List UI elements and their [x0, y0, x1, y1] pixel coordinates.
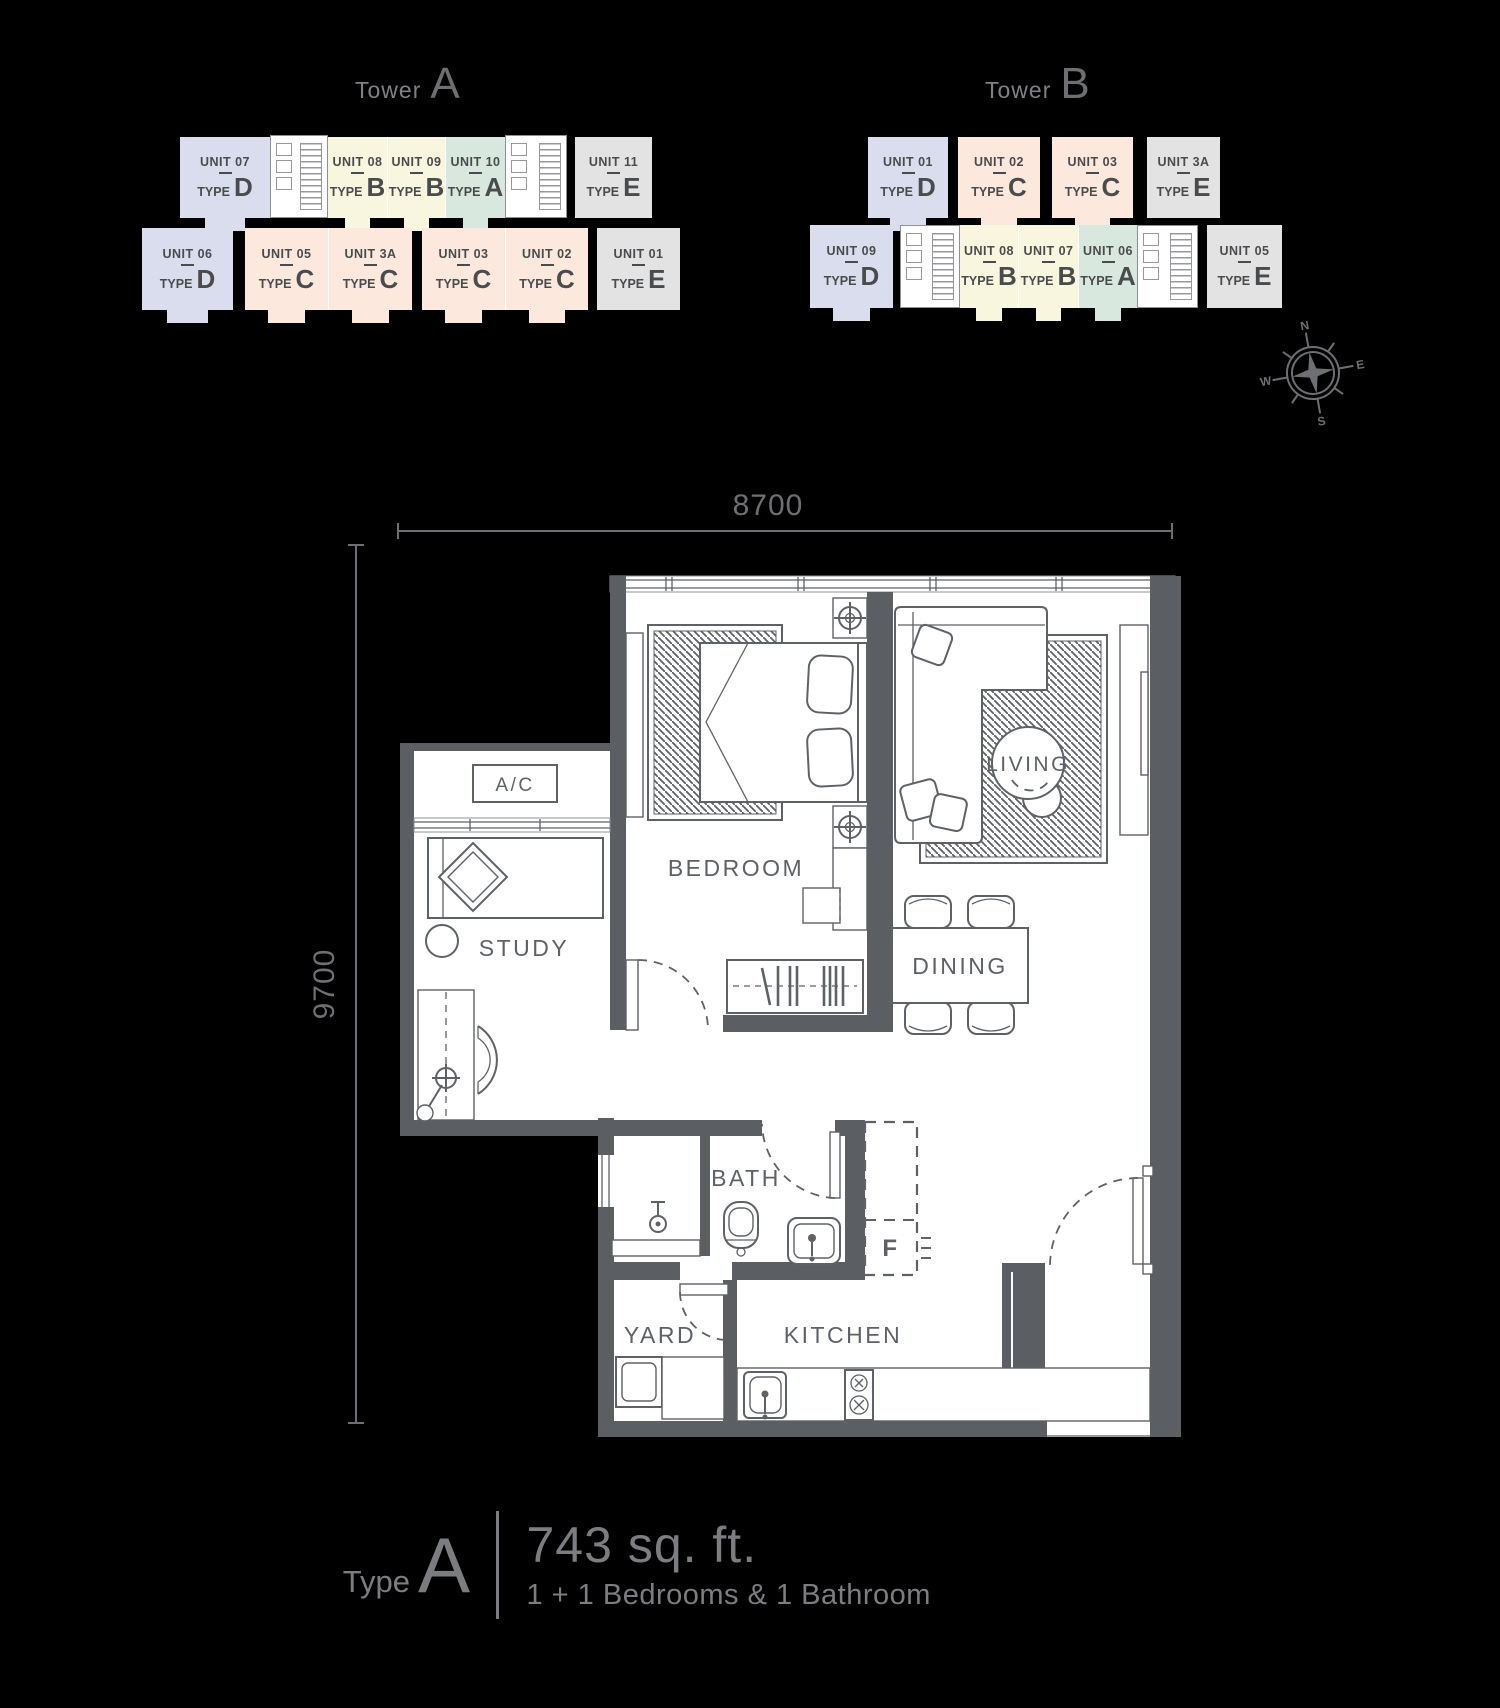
type-word: TYPE [1021, 274, 1054, 288]
tower-a-core-1 [270, 135, 328, 218]
type-letter: C [379, 268, 398, 291]
tv-console [1120, 625, 1148, 835]
type-letter: A [1117, 265, 1136, 288]
unit-block-a11: UNIT 11 TYPEE [575, 137, 652, 218]
type-word: TYPE [160, 277, 193, 291]
unit-number: UNIT 03 [1067, 155, 1117, 169]
type-letter: E [623, 176, 640, 199]
unit-block-a09: UNIT 09 TYPEB [387, 137, 445, 218]
bed [700, 643, 867, 802]
unit-number: UNIT 11 [589, 155, 638, 169]
window-shower [598, 1155, 614, 1207]
caption-area: 743 sq. ft. [527, 1518, 931, 1573]
window-sill-study [414, 818, 610, 832]
kitchen-counter [737, 1368, 1150, 1421]
unit-number: UNIT 06 [162, 247, 212, 261]
unit-block-a02: UNIT 02 TYPEC [505, 228, 588, 310]
type-letter: D [196, 268, 215, 291]
unit-number: UNIT 07 [200, 155, 250, 169]
type-word: TYPE [587, 185, 620, 199]
type-word: TYPE [448, 185, 481, 199]
type-word: TYPE [519, 277, 552, 291]
type-word: TYPE [197, 185, 230, 199]
type-letter: C [1101, 176, 1120, 199]
unit-block-a03: UNIT 03 TYPEC [422, 228, 505, 310]
unit-block-a3a: UNIT 3A TYPEC [328, 228, 412, 310]
unit-block-a10-highlight: UNIT 10 TYPEA [445, 137, 505, 218]
compass-e: E [1355, 357, 1365, 372]
caption-type-letter: A [418, 1526, 470, 1604]
unit-number: UNIT 01 [883, 155, 933, 169]
type-letter: B [998, 265, 1017, 288]
type-letter: B [1057, 265, 1076, 288]
dim-height-label: 9700 [308, 949, 341, 1020]
type-word: TYPE [971, 185, 1004, 199]
unit-block-a06: UNIT 06 TYPED [142, 228, 233, 310]
unit-number: UNIT 02 [974, 155, 1024, 169]
type-letter: C [1008, 176, 1027, 199]
bookshelf [727, 960, 863, 1013]
compass-w: W [1259, 373, 1273, 389]
type-letter: E [1193, 176, 1210, 199]
type-letter: C [472, 268, 491, 291]
unit-number: UNIT 09 [826, 244, 876, 258]
type-letter: D [234, 176, 253, 199]
unit-block-b09: UNIT 09 TYPED [810, 225, 893, 308]
unit-block-a05: UNIT 05 TYPEC [245, 228, 328, 310]
unit-block-b01: UNIT 01 TYPED [868, 137, 948, 218]
type-word: TYPE [330, 185, 363, 199]
unit-number: UNIT 05 [261, 247, 311, 261]
floorplan-sheet: Tower A Tower B UNIT 07 TYPED UNIT 08 TY… [0, 0, 1500, 1708]
type-word: TYPE [824, 274, 857, 288]
type-word: TYPE [1218, 274, 1251, 288]
unit-block-a08: UNIT 08 TYPEB [328, 137, 387, 218]
tower-a-word: Tower [355, 77, 421, 104]
type-word: TYPE [961, 274, 994, 288]
unit-block-b07: UNIT 07 TYPEB [1018, 225, 1078, 308]
ac-label: A/C [495, 775, 534, 796]
unit-number: UNIT 3A [1157, 155, 1209, 169]
bath-label: BATH [711, 1165, 781, 1191]
type-word: TYPE [612, 277, 645, 291]
unit-number: UNIT 10 [450, 155, 500, 169]
type-letter: C [295, 268, 314, 291]
unit-block-b06-highlight: UNIT 06 TYPEA [1078, 225, 1137, 308]
type-letter: B [366, 176, 385, 199]
unit-block-b03: UNIT 03 TYPEC [1052, 137, 1133, 218]
type-letter: D [860, 265, 879, 288]
window-band-top [610, 576, 1175, 592]
unit-number: UNIT 08 [332, 155, 382, 169]
ac-ledge: A/C [473, 765, 557, 802]
stove [845, 1370, 873, 1420]
unit-number: UNIT 01 [613, 247, 663, 261]
type-letter: E [1254, 265, 1271, 288]
living-label: LIVING [986, 753, 1070, 776]
tower-b-core-1 [900, 225, 960, 308]
unit-number: UNIT 07 [1023, 244, 1073, 258]
type-word: TYPE [1080, 274, 1113, 288]
type-word: TYPE [343, 277, 376, 291]
nightstand [803, 888, 840, 923]
kitchen-label: KITCHEN [784, 1322, 902, 1348]
type-letter: D [917, 176, 936, 199]
type-word: TYPE [1065, 185, 1098, 199]
caption-type-word: Type [343, 1564, 410, 1600]
unit-block-a01: UNIT 01 TYPEE [597, 228, 680, 310]
stool [426, 925, 458, 957]
unit-block-b05: UNIT 05 TYPEE [1207, 225, 1282, 308]
type-word: TYPE [880, 185, 913, 199]
unit-number: UNIT 03 [438, 247, 488, 261]
dining-label: DINING [912, 953, 1008, 979]
kitchen-sink [744, 1372, 786, 1420]
dimension-height: 9700 [308, 545, 364, 1423]
unit-number: UNIT 09 [391, 155, 441, 169]
floor-plan: 8700 9700 [280, 430, 1200, 1510]
tower-b-title: Tower B [985, 62, 1090, 106]
tower-b-letter: B [1060, 62, 1089, 106]
unit-number: UNIT 06 [1083, 244, 1133, 258]
basin [788, 1218, 840, 1264]
tower-b-word: Tower [985, 77, 1051, 104]
unit-block-b08: UNIT 08 TYPEB [960, 225, 1018, 308]
compass-s: S [1316, 414, 1326, 428]
dim-width-label: 8700 [733, 489, 804, 522]
yard-label: YARD [624, 1322, 696, 1348]
fridge-label: F [882, 1235, 899, 1262]
type-word: TYPE [436, 277, 469, 291]
type-letter: C [556, 268, 575, 291]
study-label: STUDY [479, 935, 569, 961]
type-letter: E [648, 268, 665, 291]
unit-number: UNIT 05 [1219, 244, 1269, 258]
type-word: TYPE [389, 185, 422, 199]
tower-b-core-2 [1137, 225, 1198, 308]
type-letter: B [425, 176, 444, 199]
unit-number: UNIT 3A [344, 247, 396, 261]
type-word: TYPE [1157, 185, 1190, 199]
unit-number: UNIT 02 [522, 247, 572, 261]
type-letter: A [484, 176, 503, 199]
unit-block-b02: UNIT 02 TYPEC [958, 137, 1040, 218]
plan-caption: Type A 743 sq. ft. 1 + 1 Bedrooms & 1 Ba… [290, 1500, 1050, 1630]
compass-n: N [1299, 318, 1310, 333]
type-word: TYPE [259, 277, 292, 291]
caption-rooms: 1 + 1 Bedrooms & 1 Bathroom [527, 1579, 931, 1612]
daybed [428, 838, 603, 918]
compass-rose-icon: N E S W [1258, 318, 1368, 428]
unit-block-a07: UNIT 07 TYPED [180, 137, 270, 218]
bedroom-side-window [626, 633, 643, 817]
unit-number: UNIT 08 [964, 244, 1014, 258]
bedroom-label: BEDROOM [668, 855, 804, 881]
tower-a-letter: A [430, 62, 459, 106]
unit-block-b3a: UNIT 3A TYPEE [1147, 137, 1220, 218]
tower-a-title: Tower A [355, 62, 460, 106]
tower-a-core-2 [505, 135, 567, 218]
dimension-width: 8700 [398, 489, 1172, 539]
caption-divider [496, 1511, 499, 1619]
